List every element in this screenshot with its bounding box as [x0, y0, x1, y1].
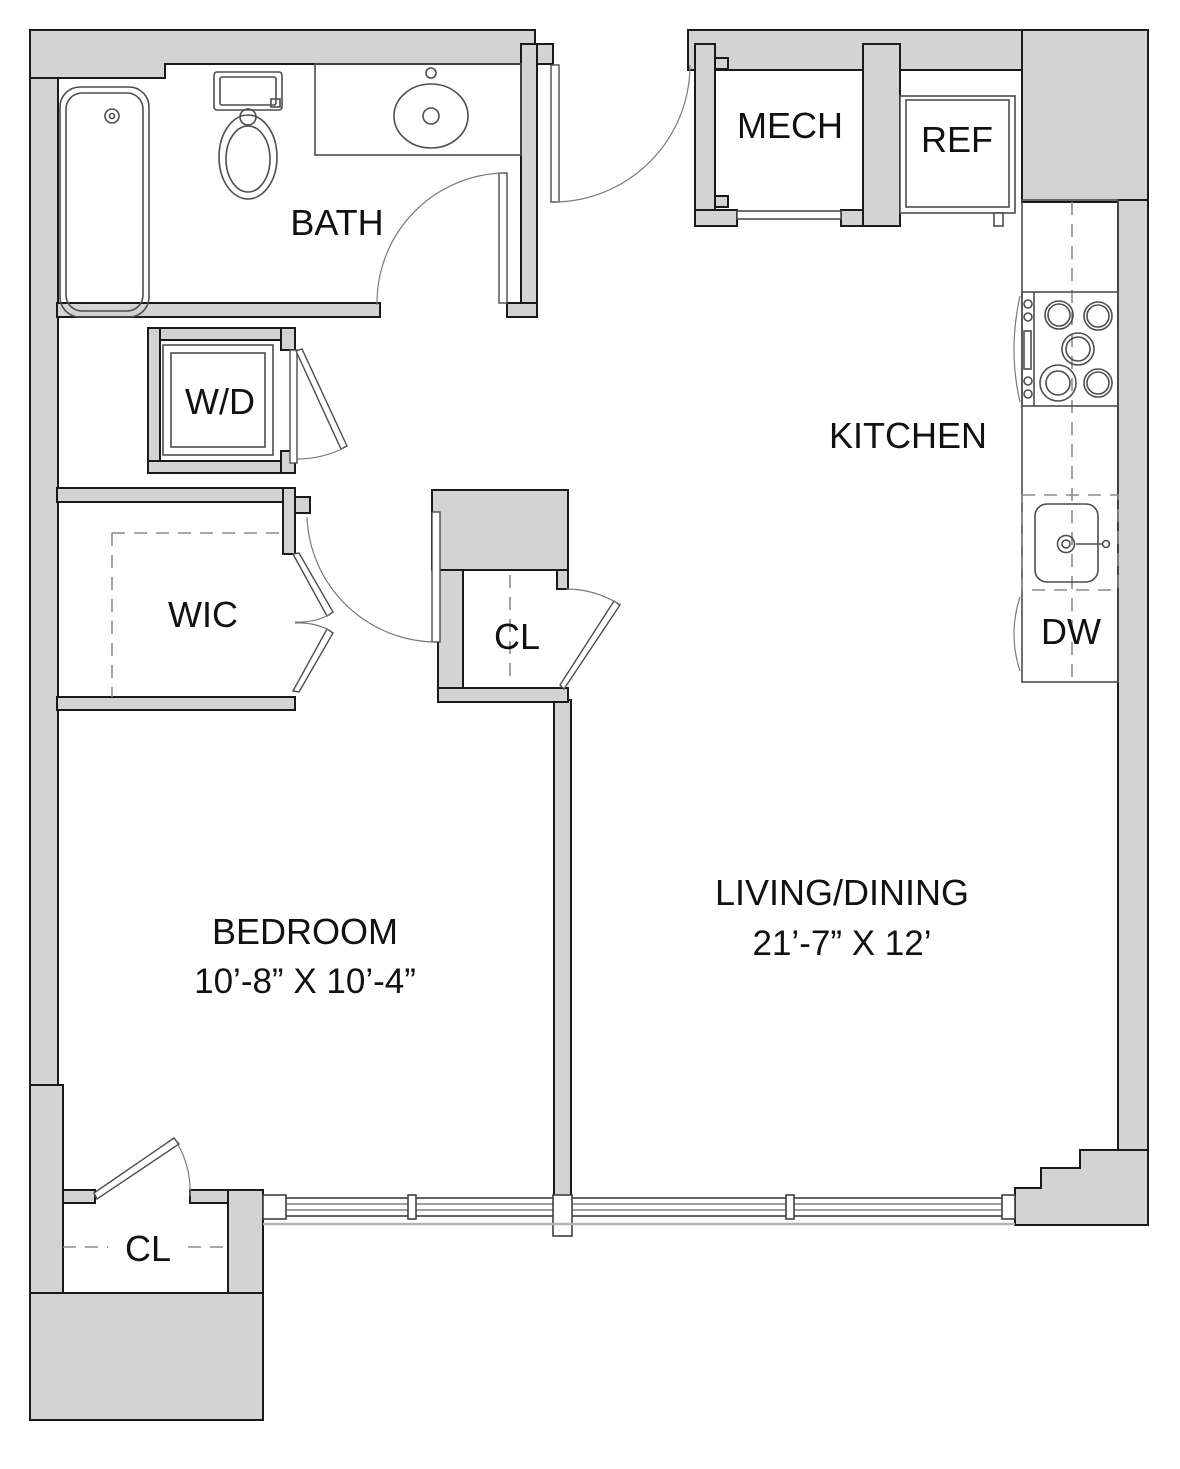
- wall-segment: [295, 497, 310, 513]
- wall-segment: [438, 570, 463, 702]
- wall-segment: [57, 488, 295, 502]
- mech-sill: [737, 211, 841, 219]
- window-mullion: [786, 1195, 794, 1219]
- stove-knob: [1024, 300, 1032, 308]
- wall-segment: [30, 30, 58, 1085]
- wall-segment: [148, 461, 287, 473]
- bedroom-closet-label: CL: [125, 1228, 171, 1269]
- stove-knob: [1024, 313, 1032, 321]
- wall-segment: [63, 1190, 95, 1203]
- wall-segment: [1015, 1150, 1148, 1225]
- oven-handle: [1014, 296, 1020, 402]
- bath-door: [377, 173, 507, 305]
- floor-plan: BATH MECH REF KITCHEN W/D WIC CL DW BEDR…: [0, 0, 1180, 1469]
- window-glazing: [263, 1198, 1015, 1216]
- wall-segment: [57, 303, 380, 317]
- window-mullion: [408, 1195, 416, 1219]
- ref-handle: [994, 213, 1003, 226]
- bath-sink: [394, 84, 468, 148]
- wall-segment: [148, 328, 287, 340]
- wall-segment: [1022, 30, 1148, 202]
- kitchen-label: KITCHEN: [829, 415, 987, 456]
- hall-closet-label: CL: [494, 616, 540, 657]
- toilet-bowl: [219, 115, 277, 199]
- washer-dryer-label: W/D: [185, 381, 255, 422]
- wic-label: WIC: [168, 594, 238, 635]
- ref-label: REF: [921, 119, 993, 160]
- wall-segment: [521, 44, 537, 317]
- wall-segment: [1118, 200, 1148, 1152]
- dishwasher-handle: [1014, 597, 1020, 671]
- refrigerator: [900, 96, 1015, 226]
- bath-label: BATH: [290, 202, 383, 243]
- wall-segment: [557, 570, 568, 589]
- wall-segment: [507, 303, 537, 317]
- wall-segment: [30, 30, 553, 78]
- wall-segment: [438, 688, 568, 702]
- kitchen-counter: [1022, 200, 1118, 682]
- dishwasher-label: DW: [1041, 611, 1101, 652]
- floor-plan-svg: BATH MECH REF KITCHEN W/D WIC CL DW BEDR…: [0, 0, 1180, 1469]
- wall-segment: [283, 488, 295, 554]
- mech-label: MECH: [737, 105, 843, 146]
- cooktop: [1014, 292, 1118, 406]
- burner: [1084, 369, 1112, 397]
- tub-drain: [105, 109, 119, 123]
- wall-segment: [281, 328, 295, 350]
- entry-door: [551, 65, 690, 202]
- window-end-cap: [1002, 1195, 1015, 1219]
- bedroom-door: [307, 512, 440, 642]
- wall-segment: [432, 490, 568, 570]
- bath-faucet: [426, 68, 436, 78]
- living-dining-label: LIVING/DINING: [715, 872, 969, 913]
- wall-segment: [863, 44, 900, 226]
- toilet: [214, 72, 282, 199]
- wall-segment: [715, 58, 728, 69]
- bedroom-closet-door: [94, 1138, 190, 1199]
- kitchen-sink: [1022, 495, 1118, 590]
- wall-segment: [228, 1190, 263, 1293]
- stove-knob: [1024, 377, 1032, 385]
- burner: [1084, 302, 1112, 330]
- wall-segment: [715, 196, 728, 207]
- bedroom-dimensions: 10’-8” X 10’-4”: [194, 962, 416, 1001]
- wall-segment: [554, 700, 571, 1196]
- wall-segment: [30, 1293, 263, 1420]
- tub-drain-center: [110, 114, 115, 119]
- room-labels: BATH MECH REF KITCHEN W/D WIC CL DW BEDR…: [125, 105, 1101, 1269]
- burner: [1045, 301, 1073, 329]
- washer-dryer-door: [290, 349, 347, 463]
- bath-vanity: [315, 64, 521, 155]
- hall-closet-door: [560, 589, 620, 689]
- bathtub: [60, 87, 149, 317]
- window-band: [263, 1195, 1015, 1236]
- wic-double-doors: [293, 553, 333, 692]
- wall-segment: [148, 328, 160, 473]
- stove-knob: [1024, 390, 1032, 398]
- window-end-cap: [263, 1195, 286, 1219]
- wall-segment: [695, 210, 737, 226]
- wall-segment: [695, 44, 715, 226]
- window-center-mullion: [553, 1195, 572, 1236]
- bedroom-label: BEDROOM: [212, 911, 398, 952]
- wall-segment: [57, 697, 295, 710]
- bath-fixtures: [60, 64, 521, 317]
- living-dining-dimensions: 21’-7” X 12’: [753, 924, 932, 963]
